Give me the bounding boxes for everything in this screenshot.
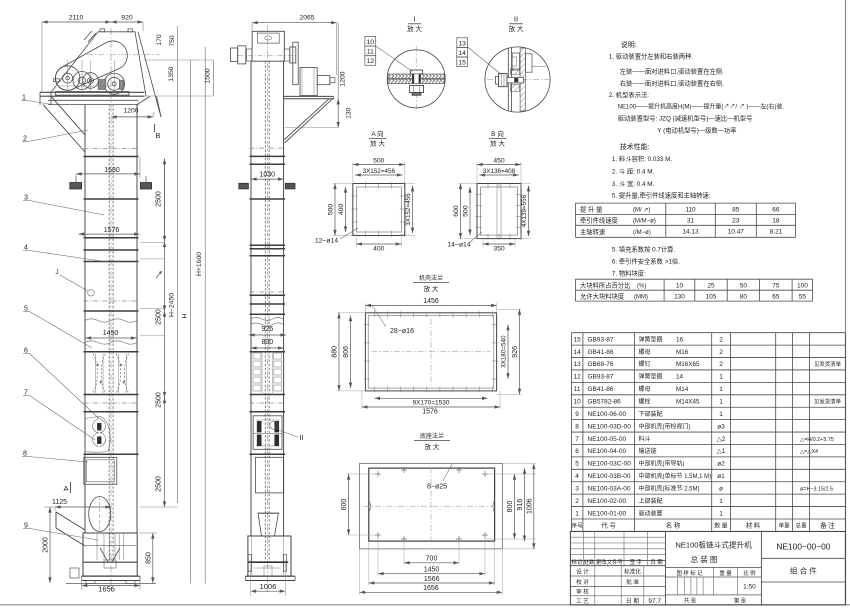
svg-text:机壳法兰: 机壳法兰 (419, 274, 443, 282)
svg-text:14−ø14: 14−ø14 (447, 242, 470, 249)
svg-text:12: 12 (367, 58, 375, 65)
svg-text:比 例: 比 例 (743, 569, 755, 577)
svg-text:2. 机型表示法:: 2. 机型表示法: (609, 90, 649, 99)
svg-text:350: 350 (493, 246, 505, 253)
svg-text:弹簧垫圈: 弹簧垫圈 (639, 373, 663, 381)
svg-text:Y (电动机型号)―级数―功率: Y (电动机型号)―级数―功率 (657, 126, 736, 135)
svg-text:700: 700 (426, 556, 438, 563)
svg-text:600: 600 (453, 205, 460, 217)
svg-text:NE100板链斗式提升机: NE100板链斗式提升机 (675, 540, 752, 550)
svg-text:28−ø16: 28−ø16 (390, 328, 414, 335)
svg-text:1656: 1656 (423, 585, 439, 592)
svg-text:单重: 单重 (778, 522, 790, 530)
svg-text:50: 50 (740, 282, 748, 289)
svg-text:2500: 2500 (155, 309, 162, 325)
svg-text:NE100-05-00: NE100-05-00 (588, 436, 627, 443)
svg-text:16: 16 (676, 336, 684, 343)
svg-text:第 张: 第 张 (734, 596, 747, 604)
svg-text:1. 驱动装置分左装和右装两种.: 1. 驱动装置分左装和右装两种. (609, 52, 694, 61)
svg-text:2: 2 (575, 498, 579, 505)
svg-text:放 大: 放 大 (370, 139, 385, 148)
svg-text:1: 1 (575, 510, 579, 517)
svg-text:926: 926 (261, 326, 273, 333)
svg-text:底座法兰: 底座法兰 (420, 432, 444, 440)
svg-text:H+1600: H+1600 (196, 252, 203, 276)
svg-text:A 向: A 向 (371, 129, 383, 138)
svg-text:2. 斗 距: 0.4 M.: 2. 斗 距: 0.4 M. (612, 168, 655, 176)
svg-text:名 称: 名 称 (666, 521, 681, 530)
svg-text:11: 11 (367, 49, 374, 56)
svg-text:2: 2 (719, 361, 723, 368)
svg-text:批 准: 批 准 (626, 578, 639, 586)
svg-text:2: 2 (719, 336, 723, 343)
svg-text:序号: 序号 (571, 522, 583, 530)
svg-text:3X136=408: 3X136=408 (483, 168, 516, 175)
svg-text:牵引件线速度: 牵引件线速度 (580, 216, 618, 225)
svg-text:中部机壳(带导轨): 中部机壳(带导轨) (639, 460, 685, 468)
svg-text:2110: 2110 (69, 15, 84, 22)
svg-text:1680: 1680 (104, 167, 120, 174)
svg-text:25: 25 (707, 282, 715, 289)
svg-text:NE100――提升机高度H(M)――提升量(↗↗/ ↗ )―: NE100――提升机高度H(M)――提升量(↗↗/ ↗ )――左(右)装. (618, 103, 785, 111)
svg-text:130: 130 (346, 107, 353, 119)
svg-text:NE100-02-00: NE100-02-00 (588, 498, 627, 505)
svg-text:允许大块料块度: 允许大块料块度 (580, 291, 625, 300)
svg-text:签 字: 签 字 (630, 558, 642, 566)
svg-text:1: 1 (719, 411, 723, 418)
svg-text:II: II (514, 15, 518, 24)
svg-text:放 大: 放 大 (425, 442, 440, 451)
svg-text:110: 110 (685, 206, 696, 213)
svg-text:驱动装置型号: JZQ (减速机型号)―速比―机型号: 驱动装置型号: JZQ (减速机型号)―速比―机型号 (618, 114, 753, 123)
svg-text:3X152=456: 3X152=456 (363, 168, 396, 175)
svg-text:1566: 1566 (424, 576, 440, 583)
svg-text:见发货清单: 见发货清单 (814, 398, 842, 406)
svg-text:916: 916 (517, 499, 524, 511)
svg-text:GB5782-86: GB5782-86 (588, 399, 622, 406)
svg-text:放 大: 放 大 (490, 139, 505, 148)
svg-text:技术性能:: 技术性能: (620, 142, 650, 151)
svg-text:M16: M16 (676, 349, 689, 356)
svg-text:见发货清单: 见发货清单 (814, 360, 842, 368)
svg-text:9X170=1530: 9X170=1530 (412, 400, 449, 407)
svg-text:重 量: 重 量 (719, 569, 732, 577)
svg-text:15: 15 (458, 60, 466, 67)
svg-text:弹簧垫圈: 弹簧垫圈 (639, 335, 663, 343)
svg-text:共 张: 共 张 (684, 596, 697, 604)
svg-text:1200: 1200 (340, 71, 347, 86)
svg-text:80: 80 (740, 293, 748, 300)
svg-text:130: 130 (674, 293, 685, 300)
svg-text:GB41-86: GB41-86 (588, 349, 614, 356)
svg-text:14.13: 14.13 (682, 229, 699, 236)
svg-text:II: II (300, 435, 304, 442)
svg-text:880: 880 (332, 346, 339, 358)
svg-text:920: 920 (121, 15, 133, 22)
svg-text:15: 15 (573, 336, 581, 343)
svg-text:驱动装置: 驱动装置 (639, 509, 663, 517)
svg-text:1125: 1125 (52, 499, 67, 506)
svg-text:12: 12 (573, 374, 581, 381)
svg-text:中部机壳(单标节 1.5M,1 M): 中部机壳(单标节 1.5M,1 M) (639, 472, 712, 480)
svg-text:1450: 1450 (103, 330, 119, 337)
svg-text:M14: M14 (676, 386, 689, 393)
svg-text:2500: 2500 (155, 392, 162, 408)
svg-text:85: 85 (732, 206, 740, 213)
svg-text:6: 6 (575, 448, 579, 455)
svg-text:总 装 图: 总 装 图 (690, 554, 717, 564)
svg-text:ø: ø (719, 485, 723, 492)
svg-text:1: 1 (719, 498, 723, 505)
svg-text:13: 13 (458, 40, 466, 47)
svg-text:1: 1 (719, 386, 723, 393)
svg-text:65: 65 (772, 293, 780, 300)
svg-text:7. 物料块度:: 7. 物料块度: (612, 269, 646, 278)
svg-text:5. 提升量,牵引件线速度和主轴转速:: 5. 提升量,牵引件线速度和主轴转速: (612, 191, 711, 200)
svg-text:8.21: 8.21 (770, 229, 783, 236)
svg-text:800: 800 (507, 501, 514, 513)
svg-text:右装――面对进料口,驱动装置在右侧.: 右装――面对进料口,驱动装置在右侧. (620, 79, 724, 88)
svg-text:螺栓: 螺栓 (639, 398, 651, 406)
svg-text:ø=H−3.15/2.5: ø=H−3.15/2.5 (800, 486, 833, 492)
svg-text:31: 31 (687, 218, 695, 225)
svg-text:3X152=456: 3X152=456 (405, 193, 412, 226)
svg-text:主轴转速: 主轴转速 (580, 227, 606, 236)
svg-text:170: 170 (156, 34, 163, 46)
svg-text:6. 牵引件安全系数 >1倍.: 6. 牵引件安全系数 >1倍. (612, 257, 680, 266)
svg-text:12−ø14: 12−ø14 (315, 238, 338, 245)
svg-text:800: 800 (261, 339, 273, 346)
svg-text:△=H/0.2+5.75: △=H/0.2+5.75 (800, 437, 834, 443)
svg-text:750: 750 (169, 35, 176, 47)
svg-text:M16X65: M16X65 (676, 361, 700, 368)
svg-text:更改文件号: 更改文件号 (596, 558, 624, 566)
svg-text:10: 10 (676, 282, 684, 289)
svg-text:总重: 总重 (795, 522, 807, 530)
svg-text:500: 500 (463, 205, 470, 217)
svg-text:NE100-03A-00: NE100-03A-00 (588, 485, 631, 492)
svg-text:NE100-03B-00: NE100-03B-00 (588, 473, 631, 480)
svg-text:1350: 1350 (168, 66, 175, 81)
svg-text:GB93-87: GB93-87 (588, 336, 614, 343)
svg-text:4: 4 (575, 473, 579, 480)
svg-text:450: 450 (493, 157, 505, 164)
svg-text:2065: 2065 (299, 15, 314, 22)
svg-text:10: 10 (367, 39, 375, 46)
svg-text:上部装配: 上部装配 (639, 497, 663, 505)
svg-text:3: 3 (575, 485, 579, 492)
svg-text:放 大: 放 大 (424, 284, 439, 293)
svg-text:105: 105 (706, 293, 717, 300)
svg-text:600: 600 (341, 499, 348, 511)
svg-text:大块料所占百分比: 大块料所占百分比 (580, 280, 630, 289)
svg-text:料斗: 料斗 (639, 435, 651, 443)
svg-text:(M/M−ø): (M/M−ø) (633, 219, 656, 225)
svg-text:GB93-87: GB93-87 (588, 374, 614, 381)
svg-text:14: 14 (458, 50, 466, 57)
svg-text:NE100−00−00: NE100−00−00 (776, 542, 830, 552)
svg-text:1:50: 1:50 (743, 584, 756, 591)
svg-text:H−2450: H−2450 (169, 293, 176, 317)
svg-text:△=△X4: △=△X4 (800, 449, 818, 455)
svg-text:中部机壳(带检视门): 中部机壳(带检视门) (639, 422, 691, 430)
svg-text:左装――面对进料口,驱动装置在左侧.: 左装――面对进料口,驱动装置在左侧. (620, 67, 724, 76)
svg-text:备 注: 备 注 (820, 521, 835, 530)
svg-text:7: 7 (575, 436, 579, 443)
svg-text:8: 8 (575, 423, 579, 430)
svg-text:组 合 件: 组 合 件 (790, 566, 817, 576)
svg-text:审 核: 审 核 (576, 587, 589, 595)
svg-text:3X180=540: 3X180=540 (501, 335, 508, 368)
svg-text:ø3: ø3 (717, 423, 725, 430)
svg-text:△1: △1 (717, 448, 726, 455)
svg-text:1: 1 (719, 399, 723, 406)
svg-text:标准化: 标准化 (624, 568, 641, 576)
svg-text:数 量: 数 量 (714, 522, 727, 530)
svg-text:10.47: 10.47 (728, 229, 745, 236)
svg-text:ø2: ø2 (717, 461, 725, 468)
svg-text:校 对: 校 对 (576, 578, 589, 586)
svg-text:2500: 2500 (155, 476, 162, 492)
svg-text:标记: 标记 (572, 558, 583, 566)
svg-text:说明:: 说明: (621, 40, 637, 49)
svg-text:M14X45: M14X45 (676, 399, 700, 406)
svg-text:输送链: 输送链 (639, 447, 657, 455)
svg-text:97.7: 97.7 (648, 598, 661, 605)
svg-text:ø1: ø1 (717, 473, 725, 480)
svg-text:400: 400 (338, 204, 345, 216)
svg-text:926: 926 (512, 346, 519, 358)
svg-text:1456: 1456 (423, 298, 439, 305)
svg-text:(MM): (MM) (634, 294, 648, 300)
svg-text:放 大: 放 大 (509, 24, 524, 33)
svg-text:5. 填充系数按 0.7计算.: 5. 填充系数按 0.7计算. (612, 245, 676, 254)
svg-text:GB68-76: GB68-76 (588, 361, 614, 368)
svg-text:1: 1 (719, 374, 723, 381)
svg-text:14: 14 (573, 349, 581, 356)
svg-text:B: B (155, 131, 160, 140)
svg-text:3. 斗 宽: 0.4 M.: 3. 斗 宽: 0.4 M. (612, 179, 655, 188)
svg-text:2: 2 (719, 349, 723, 356)
svg-text:55: 55 (799, 293, 807, 300)
svg-text:2500: 2500 (155, 191, 162, 207)
svg-text:850: 850 (145, 552, 152, 564)
svg-text:NE100-03D-00: NE100-03D-00 (588, 423, 632, 430)
svg-text:66: 66 (772, 206, 780, 213)
svg-text:H: H (182, 313, 189, 318)
svg-text:螺钉: 螺钉 (639, 360, 651, 368)
svg-text:材 料: 材 料 (746, 521, 761, 530)
svg-text:11: 11 (574, 386, 581, 393)
svg-text:9: 9 (575, 411, 579, 418)
svg-text:提 升 量: 提 升 量 (580, 204, 603, 213)
svg-text:100: 100 (797, 282, 808, 289)
svg-text:23: 23 (732, 218, 740, 225)
svg-text:1006: 1006 (260, 582, 277, 591)
svg-text:△2: △2 (717, 436, 726, 443)
svg-text:1576: 1576 (422, 409, 438, 416)
svg-text:I: I (413, 15, 415, 24)
svg-text:13: 13 (573, 361, 581, 368)
svg-text:2000: 2000 (43, 537, 50, 553)
svg-text:J: J (56, 270, 59, 276)
svg-text:中部机壳(标准节 2.5M): 中部机壳(标准节 2.5M) (639, 484, 700, 492)
svg-text:1500: 1500 (205, 68, 212, 83)
svg-text:(/M−ø): (/M−ø) (633, 230, 651, 236)
svg-text:A: A (63, 484, 68, 493)
svg-text:处数: 处数 (584, 558, 595, 566)
svg-text:806: 806 (343, 346, 350, 358)
svg-text:NE100-04-00: NE100-04-00 (588, 448, 627, 455)
svg-text:NE100-06-00: NE100-06-00 (588, 411, 627, 418)
svg-text:NE100-03C-00: NE100-03C-00 (588, 461, 632, 468)
svg-text:5: 5 (575, 461, 579, 468)
svg-text:8−ø25: 8−ø25 (427, 484, 447, 491)
svg-text:1450: 1450 (424, 566, 440, 573)
svg-text:75: 75 (772, 282, 780, 289)
svg-text:GB41-86: GB41-86 (588, 386, 614, 393)
svg-text:1656: 1656 (98, 585, 115, 594)
svg-text:4X139=556: 4X139=556 (521, 194, 528, 227)
svg-text:1. 料斗容积: 0.033 M.: 1. 料斗容积: 0.033 M. (612, 154, 672, 163)
svg-text:放 大: 放 大 (407, 24, 422, 33)
svg-text:(M/ ↗): (M/ ↗) (633, 207, 650, 213)
svg-text:(%): (%) (637, 283, 646, 289)
svg-text:18: 18 (772, 218, 780, 225)
svg-text:400: 400 (373, 246, 385, 253)
svg-text:下部装配: 下部装配 (639, 410, 663, 418)
svg-text:图 样 标 记: 图 样 标 记 (676, 569, 703, 577)
svg-text:500: 500 (373, 157, 385, 164)
svg-text:10: 10 (573, 399, 581, 406)
svg-text:1030: 1030 (260, 172, 276, 179)
svg-text:日 期: 日 期 (650, 559, 662, 566)
svg-text:1576: 1576 (104, 227, 120, 234)
svg-text:1006: 1006 (526, 498, 533, 514)
svg-text:工 艺: 工 艺 (576, 598, 589, 605)
svg-text:500: 500 (328, 204, 335, 216)
svg-text:螺母: 螺母 (639, 385, 651, 393)
svg-text:B 向: B 向 (491, 129, 504, 138)
svg-text:设 计: 设 计 (576, 568, 589, 576)
svg-text:1: 1 (719, 510, 723, 517)
svg-text:NE100-01-00: NE100-01-00 (588, 510, 627, 517)
svg-text:螺母: 螺母 (639, 348, 651, 356)
svg-text:14: 14 (676, 374, 684, 381)
svg-text:1200: 1200 (123, 108, 138, 115)
svg-text:日 期: 日 期 (626, 598, 639, 605)
svg-text:代 号: 代 号 (601, 521, 615, 530)
